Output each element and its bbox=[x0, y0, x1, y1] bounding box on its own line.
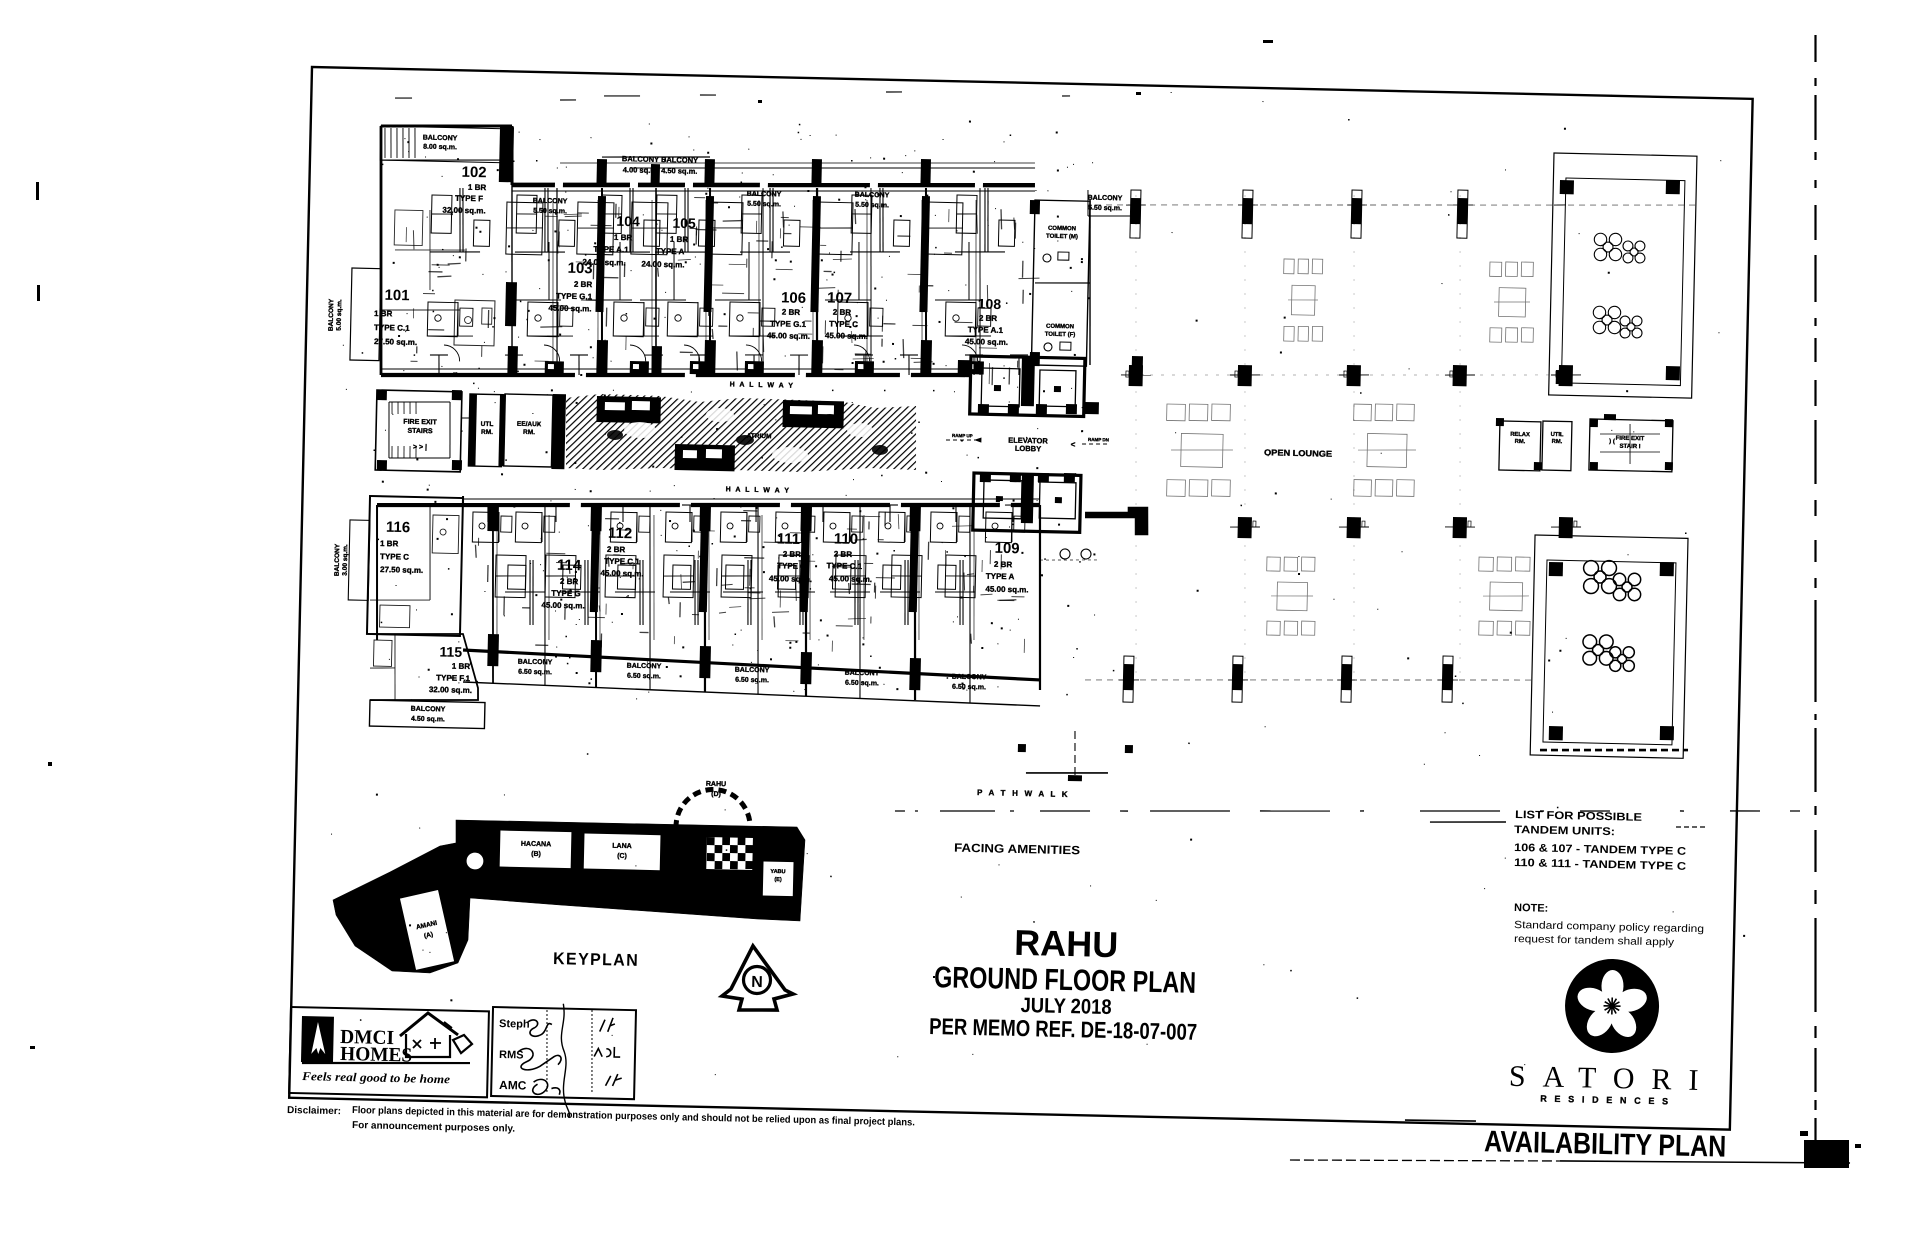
svg-text:1 BR: 1 BR bbox=[670, 235, 689, 244]
svg-text:5.50 sq.m.: 5.50 sq.m. bbox=[1088, 205, 1122, 213]
svg-text:LOBBY: LOBBY bbox=[1015, 444, 1041, 454]
svg-text:BALCONY BALCONY: BALCONY BALCONY bbox=[622, 154, 698, 165]
svg-text:LANA: LANA bbox=[612, 843, 632, 850]
svg-text:TYPE F.1: TYPE F.1 bbox=[436, 673, 471, 683]
svg-text:TYPE A.1: TYPE A.1 bbox=[968, 325, 1004, 335]
svg-text:(E): (E) bbox=[774, 877, 782, 883]
svg-text:27.50 sq.m.: 27.50 sq.m. bbox=[374, 337, 417, 347]
svg-text:TYPE C.1: TYPE C.1 bbox=[374, 323, 410, 333]
svg-text:BALCONY: BALCONY bbox=[334, 543, 342, 576]
svg-text:BALCONY: BALCONY bbox=[328, 298, 336, 331]
svg-text:5.00 sq.m.: 5.00 sq.m. bbox=[336, 299, 344, 331]
svg-text:RAMP UP: RAMP UP bbox=[952, 433, 973, 438]
svg-text:SATORI: SATORI bbox=[1509, 1060, 1716, 1098]
svg-text:N: N bbox=[751, 974, 763, 991]
svg-text:RM.: RM. bbox=[1552, 439, 1563, 445]
svg-text:FACING AMENITIES: FACING AMENITIES bbox=[954, 841, 1080, 858]
svg-text:BALCONY: BALCONY bbox=[845, 670, 880, 678]
svg-text:(B): (B) bbox=[531, 851, 541, 858]
svg-text:STAIR I: STAIR I bbox=[1620, 444, 1641, 450]
svg-text:107: 107 bbox=[827, 289, 852, 307]
svg-text:H A L L W A Y: H A L L W A Y bbox=[730, 381, 795, 389]
svg-text:BALCONY: BALCONY bbox=[533, 198, 568, 206]
svg-text:> > |: > > | bbox=[413, 444, 427, 451]
svg-text:104: 104 bbox=[616, 213, 640, 230]
svg-text:5.50 sq.m.: 5.50 sq.m. bbox=[747, 201, 781, 209]
svg-text:COMMON: COMMON bbox=[1046, 324, 1074, 331]
svg-text:4.50 sq.m.: 4.50 sq.m. bbox=[411, 716, 445, 724]
svg-text:RELAX: RELAX bbox=[1510, 432, 1530, 438]
svg-text:27.50 sq.m.: 27.50 sq.m. bbox=[380, 565, 423, 575]
svg-text:) (: ) ( bbox=[1609, 439, 1615, 445]
svg-text:2 BR: 2 BR bbox=[994, 560, 1013, 569]
svg-text:UTL: UTL bbox=[481, 421, 494, 428]
svg-text:RAMP DN: RAMP DN bbox=[1088, 437, 1109, 442]
svg-text:2 BR: 2 BR bbox=[782, 308, 801, 317]
svg-text:(C): (C) bbox=[617, 853, 627, 860]
svg-text:2 BR: 2 BR bbox=[574, 280, 593, 289]
svg-text:45.00 sq.m.: 45.00 sq.m. bbox=[541, 601, 584, 611]
svg-text:Disclaimer:: Disclaimer: bbox=[287, 1105, 341, 1117]
svg-text:6.50 sq.m.: 6.50 sq.m. bbox=[627, 673, 661, 681]
svg-text:TYPE C.1: TYPE C.1 bbox=[826, 561, 862, 571]
svg-text:FIRE EXIT: FIRE EXIT bbox=[1616, 436, 1645, 443]
svg-text:BALCONY: BALCONY bbox=[518, 659, 553, 667]
svg-text:6.50 sq.m.: 6.50 sq.m. bbox=[952, 684, 986, 692]
svg-text:TOILET (M): TOILET (M) bbox=[1046, 234, 1078, 241]
svg-text:32.00 sq.m.: 32.00 sq.m. bbox=[429, 685, 472, 695]
svg-text:45.00 sq.m.: 45.00 sq.m. bbox=[985, 585, 1028, 595]
svg-text:TYPE C: TYPE C bbox=[380, 552, 409, 562]
svg-text:COMMON: COMMON bbox=[1048, 226, 1076, 233]
svg-text:STAIRS: STAIRS bbox=[407, 428, 433, 436]
svg-text:Steph: Steph bbox=[499, 1018, 530, 1031]
svg-text:6.50 sq.m.: 6.50 sq.m. bbox=[735, 677, 769, 685]
svg-text:KEYPLAN: KEYPLAN bbox=[553, 949, 639, 970]
svg-text:2 BR: 2 BR bbox=[607, 545, 626, 554]
svg-text:NOTE:: NOTE: bbox=[1514, 902, 1548, 915]
svg-text:RM.: RM. bbox=[481, 429, 493, 436]
svg-text:101: 101 bbox=[384, 287, 409, 305]
svg-text:4.00 sq.m. 4.50 sq.m.: 4.00 sq.m. 4.50 sq.m. bbox=[623, 165, 698, 176]
svg-text:TYPE A: TYPE A bbox=[986, 572, 1015, 582]
svg-text:<: < bbox=[1071, 440, 1076, 449]
svg-text:1 BR: 1 BR bbox=[380, 539, 399, 548]
svg-text:BALCONY: BALCONY bbox=[735, 667, 770, 675]
svg-text:45.00 sq.m.: 45.00 sq.m. bbox=[600, 569, 643, 579]
svg-text:110: 110 bbox=[834, 530, 859, 548]
svg-text:BALCONY: BALCONY bbox=[423, 135, 458, 143]
svg-text:RAHU: RAHU bbox=[1014, 922, 1119, 965]
svg-text:HACANA: HACANA bbox=[521, 841, 551, 849]
svg-text:UTIL: UTIL bbox=[1551, 432, 1564, 438]
svg-text:102: 102 bbox=[461, 164, 486, 182]
svg-text:(D): (D) bbox=[711, 791, 721, 798]
svg-text:1 BR: 1 BR bbox=[468, 183, 487, 192]
svg-text:115: 115 bbox=[439, 643, 462, 660]
svg-text:6.50 sq.m.: 6.50 sq.m. bbox=[518, 669, 552, 677]
svg-text:YABU: YABU bbox=[770, 869, 785, 875]
svg-text:TOILET (F): TOILET (F) bbox=[1045, 332, 1076, 339]
svg-text:3.00 sq.m.: 3.00 sq.m. bbox=[342, 544, 350, 576]
svg-text:RM.: RM. bbox=[523, 429, 535, 436]
svg-text:8.00 sq.m.: 8.00 sq.m. bbox=[423, 144, 457, 152]
svg-text:ATRIUM: ATRIUM bbox=[747, 433, 772, 441]
svg-text:24.00 sq.m.: 24.00 sq.m. bbox=[641, 260, 684, 270]
svg-text:108: 108 bbox=[978, 295, 1002, 312]
svg-text:BALCONY: BALCONY bbox=[627, 663, 662, 671]
svg-text:RM.: RM. bbox=[1515, 439, 1526, 445]
svg-text:BALCONY: BALCONY bbox=[411, 706, 446, 714]
svg-text:1 BR: 1 BR bbox=[452, 662, 471, 671]
svg-text:116: 116 bbox=[386, 519, 411, 537]
svg-text:TYPE A.1: TYPE A.1 bbox=[593, 245, 629, 255]
svg-text:BALCONY: BALCONY bbox=[952, 674, 987, 682]
svg-text:AMC: AMC bbox=[499, 1078, 527, 1093]
svg-text:OPEN LOUNGE: OPEN LOUNGE bbox=[1264, 447, 1333, 459]
svg-text:45.00 sq.m.: 45.00 sq.m. bbox=[769, 574, 812, 584]
svg-text:45.00 sq.m.: 45.00 sq.m. bbox=[965, 337, 1008, 347]
svg-text:5.50 sq.m.: 5.50 sq.m. bbox=[533, 208, 567, 216]
svg-text:2 BR: 2 BR bbox=[834, 550, 853, 559]
svg-text:BALCONY: BALCONY bbox=[1088, 195, 1123, 203]
svg-text:106: 106 bbox=[781, 289, 806, 307]
svg-text:RAHU: RAHU bbox=[706, 781, 726, 788]
svg-text:2 BR: 2 BR bbox=[833, 308, 852, 317]
svg-text:H A L L W A Y: H A L L W A Y bbox=[726, 486, 791, 494]
svg-text:FIRE EXIT: FIRE EXIT bbox=[403, 419, 437, 427]
svg-text:6.50 sq.m.: 6.50 sq.m. bbox=[845, 680, 879, 688]
svg-text:AVAILABILITY PLAN: AVAILABILITY PLAN bbox=[1484, 1125, 1727, 1163]
svg-text:2 BR: 2 BR bbox=[783, 550, 802, 559]
svg-text:112: 112 bbox=[608, 525, 633, 543]
svg-text:TYPE C: TYPE C bbox=[829, 319, 858, 329]
svg-text:TANDEM UNITS:: TANDEM UNITS: bbox=[1514, 824, 1615, 838]
svg-text:2 BR: 2 BR bbox=[979, 314, 998, 323]
svg-text:BALCONY: BALCONY bbox=[747, 191, 782, 199]
svg-text:TYPE C: TYPE C bbox=[777, 561, 806, 571]
svg-text:TYPE F: TYPE F bbox=[455, 194, 483, 204]
